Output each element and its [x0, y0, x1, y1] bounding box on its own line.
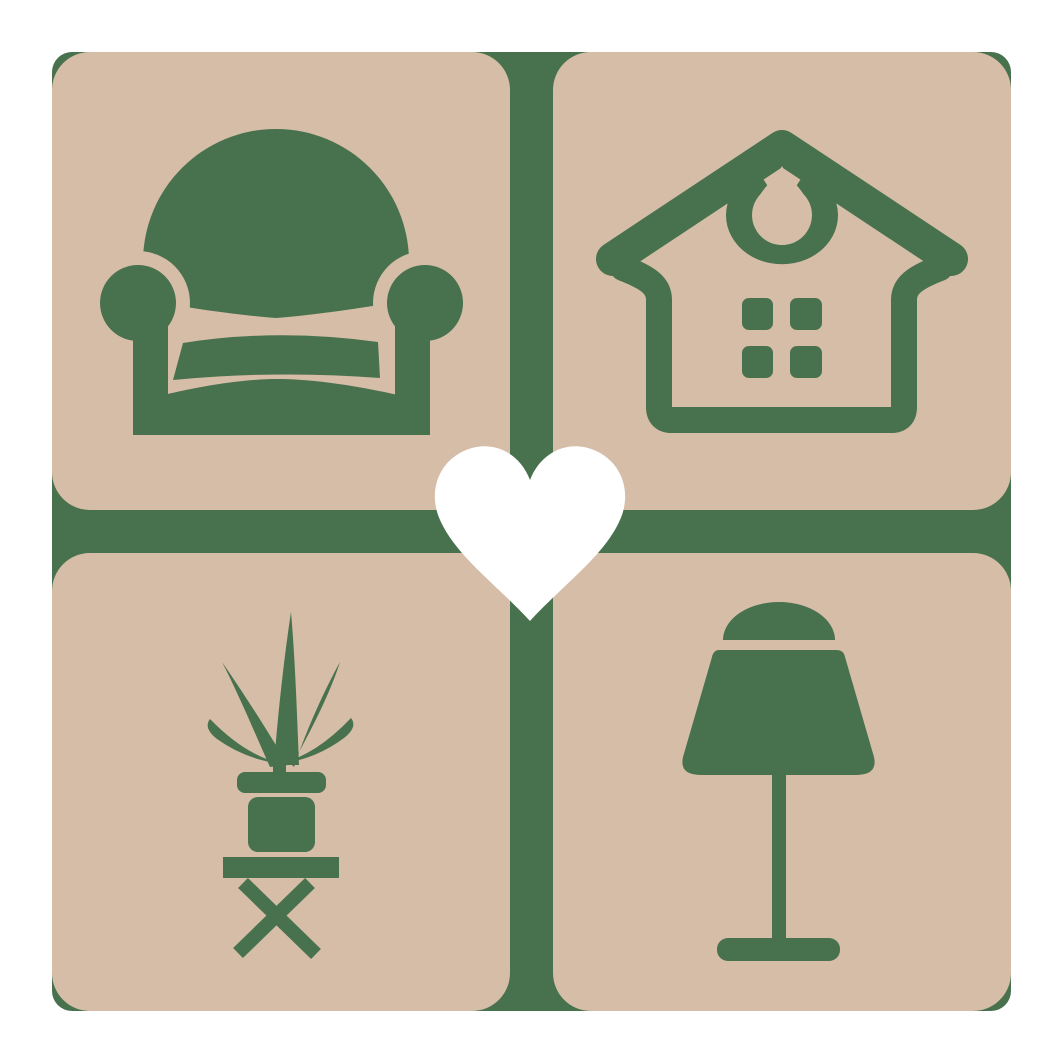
tile-bottom-left [52, 553, 510, 1011]
potted-plant-icon [52, 553, 510, 1011]
table-lamp-icon [553, 553, 1011, 1011]
armchair-icon [52, 52, 510, 510]
house-icon [553, 52, 1011, 510]
tile-bottom-right [553, 553, 1011, 1011]
logo-canvas [0, 0, 1063, 1063]
tile-top-right [553, 52, 1011, 510]
tile-top-left [52, 52, 510, 510]
